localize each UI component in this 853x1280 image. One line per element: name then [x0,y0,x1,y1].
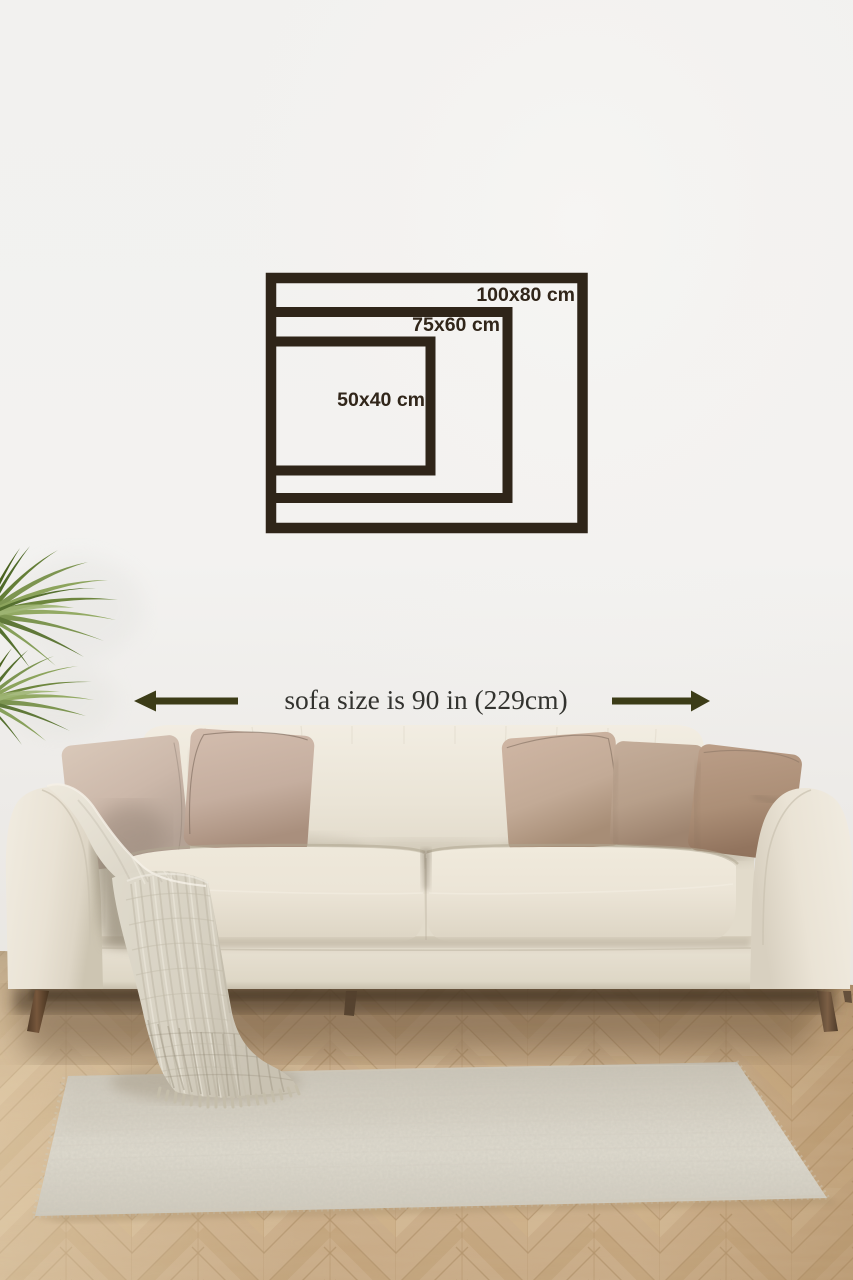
svg-text:50x40 cm: 50x40 cm [337,389,425,411]
svg-text:75x60 cm: 75x60 cm [412,314,500,336]
svg-text:sofa size is 90 in (229cm): sofa size is 90 in (229cm) [284,684,567,715]
svg-text:100x80 cm: 100x80 cm [476,284,575,306]
